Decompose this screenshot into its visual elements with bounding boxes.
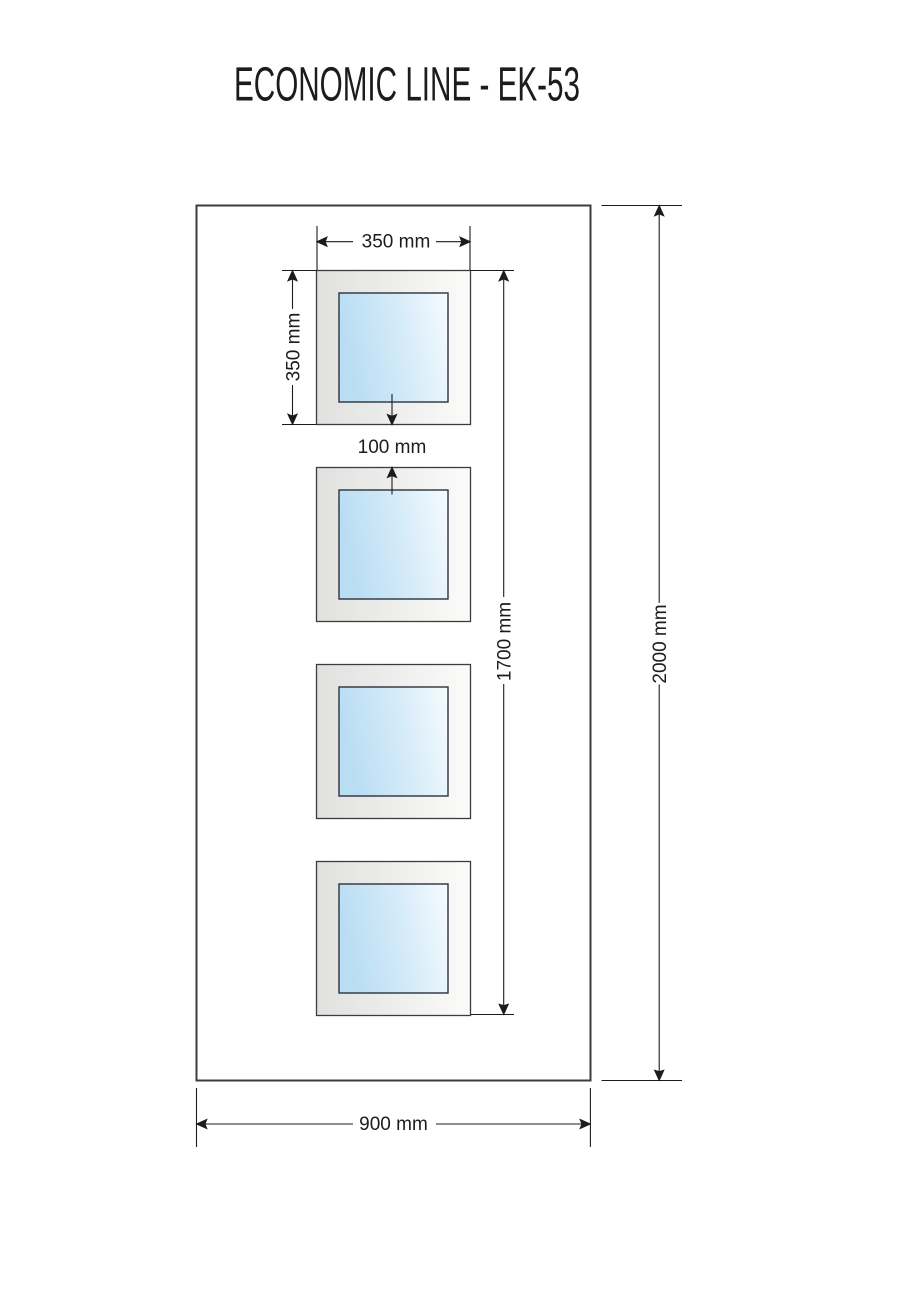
svg-text:350 mm: 350 mm (362, 232, 431, 253)
svg-text:100 mm: 100 mm (358, 437, 427, 458)
svg-text:900 mm: 900 mm (359, 1114, 428, 1135)
svg-text:1700 mm: 1700 mm (495, 602, 516, 681)
svg-text:350 mm: 350 mm (284, 313, 305, 382)
svg-text:2000 mm: 2000 mm (650, 604, 671, 683)
svg-text:ECONOMIC LINE - EK-53: ECONOMIC LINE - EK-53 (234, 59, 580, 112)
